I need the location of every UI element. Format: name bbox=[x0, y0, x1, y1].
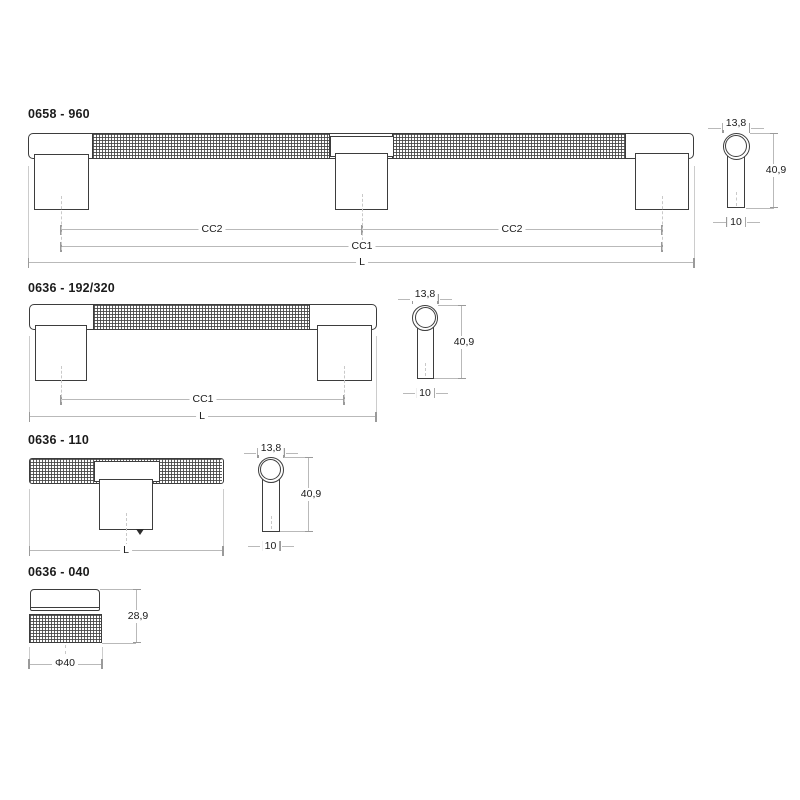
post-arrow-marker bbox=[136, 529, 144, 535]
drawing-title: 0636 - 040 bbox=[28, 565, 90, 579]
dim-label-height: 28,9 bbox=[125, 610, 151, 623]
dim-label-length: L bbox=[356, 256, 368, 269]
dim-label-height: 40,9 bbox=[298, 488, 324, 501]
centerline bbox=[61, 366, 62, 402]
centerline bbox=[344, 366, 345, 402]
dim-label-height: 40,9 bbox=[763, 164, 789, 177]
dim-label-cc2-right: CC2 bbox=[498, 223, 525, 236]
dimension-connector bbox=[100, 589, 136, 590]
drawing-0636-040: 0636 - 040 28,9 Φ40 bbox=[0, 0, 800, 800]
dimension-tick bbox=[133, 589, 141, 590]
centerline bbox=[65, 645, 66, 654]
centerline bbox=[271, 516, 272, 529]
side-view-ring bbox=[723, 133, 750, 160]
dimension-tick bbox=[28, 659, 30, 669]
centerline bbox=[425, 363, 426, 376]
dimension-tick bbox=[101, 659, 103, 669]
knob-knurl-section bbox=[29, 614, 102, 644]
centerline bbox=[662, 196, 663, 250]
dim-label-length: L bbox=[120, 544, 132, 557]
side-view-ring-inner bbox=[415, 307, 436, 328]
dimension-tick bbox=[133, 642, 141, 643]
centerline bbox=[126, 513, 127, 546]
dim-label-cc2-left: CC2 bbox=[198, 223, 225, 236]
side-view-ring bbox=[258, 457, 284, 483]
dimension-connector bbox=[102, 643, 136, 644]
dim-label-diameter: 13,8 bbox=[412, 288, 438, 301]
technical-drawing-sheet: 0658 - 960 CC2 CC2 CC1 L bbox=[0, 0, 800, 800]
side-view-ring-inner bbox=[725, 135, 747, 157]
side-view-ring-inner bbox=[260, 459, 281, 480]
dim-label-cc1: CC1 bbox=[189, 393, 216, 406]
knob-edge-line bbox=[31, 607, 99, 608]
mounting-post-left bbox=[34, 154, 89, 210]
side-view-ring bbox=[412, 305, 438, 331]
centerline bbox=[736, 192, 737, 206]
dim-label-diameter: Φ40 bbox=[52, 657, 78, 670]
dim-label-diameter: 13,8 bbox=[723, 117, 749, 130]
dim-label-diameter: 13,8 bbox=[258, 442, 284, 455]
dim-label-length: L bbox=[196, 410, 208, 423]
dim-label-height: 40,9 bbox=[451, 336, 477, 349]
dim-label-stem-width: 10 bbox=[416, 387, 434, 400]
dim-label-stem-width: 10 bbox=[262, 540, 280, 553]
mounting-post-right bbox=[317, 325, 372, 381]
dim-label-cc1: CC1 bbox=[348, 240, 375, 253]
dim-label-stem-width: 10 bbox=[727, 216, 745, 229]
centerline bbox=[61, 196, 62, 250]
